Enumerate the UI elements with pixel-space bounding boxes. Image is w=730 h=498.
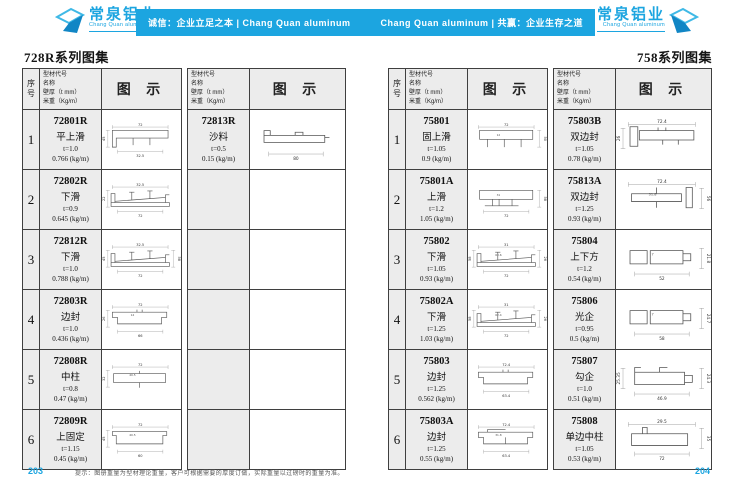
row-index: 2 — [389, 170, 406, 230]
profile-diagram-empty — [250, 410, 346, 470]
profile-weight: 0.51 (kg/m) — [554, 395, 615, 403]
profile-weight: 0.93 (kg/m) — [554, 215, 615, 223]
brand-logo-right: 常泉铝业 Chang Quan aluminum — [597, 7, 699, 35]
col-header-diagram: 图 示 — [616, 69, 712, 110]
profile-diagram-cell: 80 — [250, 110, 346, 170]
row-index: 3 — [389, 230, 406, 290]
dim-label-left: 45 — [102, 436, 106, 441]
row-index: 6 — [23, 410, 40, 470]
profile-thickness: t=1.25 — [406, 385, 467, 393]
profile-name: 光企 — [554, 309, 615, 323]
profile-cross-section-diagram: 725831 — [468, 172, 547, 228]
profile-diagram-cell: 72.45631.8 — [616, 170, 712, 230]
dim-label-right: 50 — [543, 136, 547, 141]
profile-diagram-cell: 72662614 — [102, 290, 182, 350]
dim-label-bottom: 66 — [138, 334, 143, 338]
row-index: 4 — [389, 290, 406, 350]
dim-label-bottom: 58 — [659, 336, 665, 342]
profile-name: 单边中柱 — [554, 429, 615, 443]
profile-info-empty — [188, 410, 250, 470]
row-index: 4 — [23, 290, 40, 350]
profile-weight: 0.645 (kg/m) — [40, 215, 101, 223]
table-header-row: 型材代号名称壁厚（t mm）米重（Kg/m）图 示 — [554, 69, 712, 110]
profile-row: 75804上下方t=1.20.54 (kg/m)5221.87 — [554, 230, 712, 290]
profile-code: 75813A — [554, 176, 615, 187]
profile-thickness: t=0.95 — [554, 325, 615, 333]
profile-weight: 0.78 (kg/m) — [554, 155, 615, 163]
dim-label-bottom: 72 — [504, 214, 509, 218]
profile-info: 75802下滑t=1.050.93 (kg/m) — [406, 230, 468, 290]
banner-slogan-right: Chang Quan aluminum | 共赢：企业生存之道 — [380, 16, 583, 29]
profile-row: 75813A双边封t=1.250.93 (kg/m)72.45631.8 — [554, 170, 712, 230]
dim-label-left: 22 — [102, 196, 106, 201]
profile-cross-section-diagram: 80 — [250, 112, 345, 168]
dim-label-top: 72 — [138, 123, 143, 127]
profile-thickness: t=1.2 — [554, 265, 615, 273]
series-title-758: 758系列图集 — [637, 47, 712, 66]
profile-code: 72808R — [40, 356, 101, 367]
profile-info: 72809R上固定t=1.150.45 (kg/m) — [40, 410, 102, 470]
dim-label-bottom: 72 — [138, 214, 143, 218]
table-758-left: 序号型材代号名称壁厚（t mm）米重（Kg/m）图 示175801固上滑t=1.… — [388, 68, 548, 470]
dim-label-bottom: 72 — [504, 334, 509, 338]
profile-info-empty — [188, 290, 250, 350]
profile-diagram-empty — [250, 170, 346, 230]
dim-label-bottom: 52 — [659, 276, 665, 282]
profile-name: 边封 — [406, 429, 467, 443]
row-index: 5 — [23, 350, 40, 410]
profile-code: 75806 — [554, 296, 615, 307]
profile-row: 172801R平上滑t=1.00.766 (kg/m)7232.545 — [23, 110, 182, 170]
profile-code: 72801R — [40, 116, 101, 127]
dim-label-top: 72 — [138, 423, 143, 427]
dim-label-right: 58 — [543, 196, 547, 201]
profile-weight: 1.05 (kg/m) — [406, 215, 467, 223]
profile-row: 75808单边中柱t=1.050.53 (kg/m)29.57235 — [554, 410, 712, 470]
profile-thickness: t=1.2 — [406, 205, 467, 213]
dim-label-right: 21.8 — [705, 254, 711, 264]
profile-thickness: t=1.05 — [554, 445, 615, 453]
profile-cross-section-diagram: 32.5725845 — [102, 232, 181, 288]
profile-cross-section-diagram: 5221.87 — [616, 232, 711, 288]
profile-weight: 0.562 (kg/m) — [406, 395, 467, 403]
profile-diagram-cell: 725831 — [468, 170, 548, 230]
dim-label-inner: 62.4 — [495, 313, 502, 317]
dim-label-inner: 31.8 — [649, 192, 657, 196]
table-header-row: 型材代号名称壁厚（t mm）米重（Kg/m）图 示 — [188, 69, 346, 110]
profile-info-empty — [188, 170, 250, 230]
row-index: 6 — [389, 410, 406, 470]
catalog-page: 常泉铝业 Chang Quan aluminum 诚信：企业立足之本 | Cha… — [0, 0, 730, 498]
profile-thickness: t=1.25 — [554, 205, 615, 213]
profile-info: 75802A下滑t=1.251.03 (kg/m) — [406, 290, 468, 350]
profile-thickness: t=1.05 — [406, 265, 467, 273]
profile-info: 72808R中柱t=0.80.47 (kg/m) — [40, 350, 102, 410]
profile-info: 72802R下滑t=0.90.645 (kg/m) — [40, 170, 102, 230]
profile-weight: 0.54 (kg/m) — [554, 275, 615, 283]
profile-name: 下滑 — [406, 309, 467, 323]
profile-info: 75806光企t=0.950.5 (kg/m) — [554, 290, 616, 350]
profile-code: 75801A — [406, 176, 467, 187]
col-header-profile-info: 型材代号名称壁厚（t mm）米重（Kg/m） — [554, 69, 616, 110]
page-number-left: 203 — [28, 466, 43, 476]
dim-label-left: 32 — [102, 376, 106, 381]
profile-cross-section-diagram: 3172265862.4 — [468, 292, 547, 348]
profile-row: 375802下滑t=1.050.93 (kg/m)3172265863.6 — [389, 230, 548, 290]
dim-label-bottom: 63.4 — [502, 454, 511, 458]
profile-name: 中柱 — [40, 369, 101, 383]
dim-label-inner: 40.5 — [129, 433, 136, 437]
dim-label-top: 31 — [504, 243, 509, 247]
profile-cross-section-diagram: 46.924.325.35 — [616, 352, 711, 408]
profile-cross-section-diagram: 29.57235 — [616, 412, 711, 468]
profile-diagram-cell: 723240.5 — [102, 350, 182, 410]
profile-weight: 0.436 (kg/m) — [40, 335, 101, 343]
dim-label-bottom: 60 — [138, 454, 143, 458]
profile-row: 372812R下滑t=1.00.788 (kg/m)32.5725845 — [23, 230, 182, 290]
profile-row: 575803边封t=1.250.562 (kg/m)72.463.4 — [389, 350, 548, 410]
profile-code: 75807 — [554, 356, 615, 367]
profile-info: 72803R边封t=1.00.436 (kg/m) — [40, 290, 102, 350]
brand-diamond-icon — [669, 7, 699, 35]
dim-label-bottom: 32.5 — [136, 154, 144, 158]
profile-cross-section-diagram: 72662614 — [102, 292, 181, 348]
profile-row — [188, 230, 346, 290]
profile-weight: 0.766 (kg/m) — [40, 155, 101, 163]
profile-row — [188, 170, 346, 230]
profile-cross-section-diagram: 5824.77 — [616, 292, 711, 348]
dim-label-top: 72.4 — [502, 363, 511, 367]
profile-diagram-cell: 32.57222 — [102, 170, 182, 230]
brand-name-en: Chang Quan aluminum — [603, 23, 665, 29]
dim-label-right: 58 — [177, 256, 181, 261]
row-index: 1 — [389, 110, 406, 170]
dim-label-left: 26 — [616, 135, 622, 141]
profile-diagram-cell: 3172265863.6 — [468, 230, 548, 290]
row-index: 1 — [23, 110, 40, 170]
profile-row — [188, 290, 346, 350]
dim-label-right: 24.3 — [705, 374, 711, 384]
profile-code: 75803A — [406, 416, 467, 427]
profile-code: 75804 — [554, 236, 615, 247]
profile-name: 边封 — [40, 309, 101, 323]
table-758-right: 型材代号名称壁厚（t mm）米重（Kg/m）图 示75803B双边封t=1.05… — [553, 68, 712, 470]
profile-row: 672809R上固定t=1.150.45 (kg/m)72604540.5 — [23, 410, 182, 470]
dim-label-left: 26 — [102, 316, 106, 321]
profile-info: 75801A上滑t=1.21.05 (kg/m) — [406, 170, 468, 230]
profiles-table: 序号型材代号名称壁厚（t mm）米重（Kg/m）图 示172801R平上滑t=1… — [22, 68, 182, 470]
profile-weight: 0.788 (kg/m) — [40, 275, 101, 283]
profile-cross-section-diagram: 3172265863.6 — [468, 232, 547, 288]
dim-label-top: 72.4 — [657, 119, 667, 125]
table-728r-left: 序号型材代号名称壁厚（t mm）米重（Kg/m）图 示172801R平上滑t=1… — [22, 68, 182, 470]
profile-cross-section-diagram: 72.426 — [616, 112, 711, 168]
profile-thickness: t=0.9 — [40, 205, 101, 213]
dim-label-left: 45 — [102, 256, 106, 261]
profile-cross-section-diagram: 72.463.431.8 — [468, 412, 547, 468]
banner-slogan-left: 诚信：企业立足之本 | Chang Quan aluminum — [148, 16, 351, 29]
profile-row: 475802A下滑t=1.251.03 (kg/m)3172265862.4 — [389, 290, 548, 350]
col-header-profile-info: 型材代号名称壁厚（t mm）米重（Kg/m） — [406, 69, 468, 110]
profile-thickness: t=1.0 — [40, 145, 101, 153]
dim-label-top: 72 — [138, 303, 143, 307]
dim-label-top: 72 — [504, 123, 509, 127]
profile-info: 75803A边封t=1.250.55 (kg/m) — [406, 410, 468, 470]
profile-code: 75803B — [554, 116, 615, 127]
profile-thickness: t=0.8 — [40, 385, 101, 393]
profile-weight: 0.93 (kg/m) — [406, 275, 467, 283]
profile-thickness: t=0.5 — [188, 145, 249, 153]
profile-code: 72809R — [40, 416, 101, 427]
profile-thickness: t=1.0 — [40, 325, 101, 333]
profile-diagram-cell: 725012 — [468, 110, 548, 170]
profile-row: 675803A边封t=1.250.55 (kg/m)72.463.431.8 — [389, 410, 548, 470]
profile-weight: 0.47 (kg/m) — [40, 395, 101, 403]
profile-row: 272802R下滑t=0.90.645 (kg/m)32.57222 — [23, 170, 182, 230]
profile-row: 275801A上滑t=1.21.05 (kg/m)725831 — [389, 170, 548, 230]
profile-thickness: t=1.05 — [406, 145, 467, 153]
dim-label-bottom: 72 — [504, 274, 509, 278]
dim-label-top: 72.4 — [657, 179, 667, 185]
profile-cross-section-diagram: 32.57222 — [102, 172, 181, 228]
col-header-diagram: 图 示 — [102, 69, 182, 110]
profiles-table: 型材代号名称壁厚（t mm）米重（Kg/m）图 示75803B双边封t=1.05… — [553, 68, 712, 470]
profile-info: 75807勾企t=1.00.51 (kg/m) — [554, 350, 616, 410]
table-728r-right: 型材代号名称壁厚（t mm）米重（Kg/m）图 示72813R沙料t=0.50.… — [187, 68, 346, 470]
profile-diagram-cell: 72604540.5 — [102, 410, 182, 470]
row-index: 3 — [23, 230, 40, 290]
profile-cross-section-diagram: 725012 — [468, 112, 547, 168]
profile-name: 下滑 — [40, 249, 101, 263]
profile-info: 75801固上滑t=1.050.9 (kg/m) — [406, 110, 468, 170]
profile-name: 双边封 — [554, 129, 615, 143]
profile-row: 175801固上滑t=1.050.9 (kg/m)725012 — [389, 110, 548, 170]
dim-label-top: 32.5 — [136, 243, 144, 247]
profiles-table: 型材代号名称壁厚（t mm）米重（Kg/m）图 示72813R沙料t=0.50.… — [187, 68, 346, 470]
dim-label-inner: 7 — [651, 312, 653, 316]
dim-label-top: 72.4 — [502, 423, 511, 427]
row-index: 2 — [23, 170, 40, 230]
dim-label-top: 72 — [138, 363, 143, 367]
profile-name: 勾企 — [554, 369, 615, 383]
profile-weight: 0.15 (kg/m) — [188, 155, 249, 163]
profile-thickness: t=1.05 — [554, 145, 615, 153]
profile-thickness: t=1.25 — [406, 445, 467, 453]
profile-name: 沙料 — [188, 129, 249, 143]
dim-label-top: 32.5 — [136, 183, 144, 187]
profile-code: 72813R — [188, 116, 249, 127]
profile-weight: 0.53 (kg/m) — [554, 455, 615, 463]
dim-label-bottom: 46.9 — [657, 396, 667, 402]
profile-row: 472803R边封t=1.00.436 (kg/m)72662614 — [23, 290, 182, 350]
dim-label-bottom: 72 — [659, 456, 665, 462]
dim-label-right: 24.7 — [705, 314, 711, 324]
page-number-right: 204 — [695, 466, 710, 476]
dim-label-right: 35 — [705, 436, 711, 442]
profile-name: 上固定 — [40, 429, 101, 443]
dim-label-right: 26 — [543, 316, 547, 321]
col-header-index: 序号 — [389, 69, 406, 110]
col-header-diagram: 图 示 — [468, 69, 548, 110]
profile-name: 平上滑 — [40, 129, 101, 143]
dim-label-inner: 40.5 — [129, 373, 136, 377]
profile-info: 75804上下方t=1.20.54 (kg/m) — [554, 230, 616, 290]
profile-diagram-empty — [250, 290, 346, 350]
profile-diagram-cell: 5221.87 — [616, 230, 712, 290]
series-title-728r: 728R系列图集 — [24, 47, 109, 66]
profile-thickness: t=1.0 — [40, 265, 101, 273]
col-header-profile-info: 型材代号名称壁厚（t mm）米重（Kg/m） — [40, 69, 102, 110]
profile-cross-section-diagram: 7232.545 — [102, 112, 181, 168]
dim-label-top: 29.5 — [657, 419, 667, 425]
profile-cross-section-diagram: 723240.5 — [102, 352, 181, 408]
profile-diagram-cell: 5824.77 — [616, 290, 712, 350]
profile-cross-section-diagram: 72.463.4 — [468, 352, 547, 408]
dim-label-right: 56 — [705, 196, 711, 202]
profile-weight: 0.9 (kg/m) — [406, 155, 467, 163]
col-header-profile-info: 型材代号名称壁厚（t mm）米重（Kg/m） — [188, 69, 250, 110]
profile-row: 572808R中柱t=0.80.47 (kg/m)723240.5 — [23, 350, 182, 410]
dim-label-left: 25.35 — [616, 372, 622, 384]
header-banner: 诚信：企业立足之本 | Chang Quan aluminum Chang Qu… — [136, 9, 595, 36]
profile-name: 固上滑 — [406, 129, 467, 143]
dim-label-inner: 31 — [497, 193, 501, 197]
dim-label-left: 45 — [102, 136, 106, 141]
profile-thickness: t=1.0 — [554, 385, 615, 393]
footer-note: 提示：图册重量为型材理论重量，客户可根据需要的厚度订做，实际重量以过磅时的重量为… — [75, 468, 344, 477]
profile-info: 72801R平上滑t=1.00.766 (kg/m) — [40, 110, 102, 170]
profile-code: 75802A — [406, 296, 467, 307]
profile-diagram-cell: 32.5725845 — [102, 230, 182, 290]
profile-diagram-cell: 72.463.4 — [468, 350, 548, 410]
profile-name: 下滑 — [406, 249, 467, 263]
profile-thickness: t=1.15 — [40, 445, 101, 453]
dim-label-inner: 7 — [651, 252, 653, 256]
profile-row — [188, 410, 346, 470]
profile-row: 75803B双边封t=1.050.78 (kg/m)72.426 — [554, 110, 712, 170]
dim-label-bottom: 63.4 — [502, 394, 511, 398]
dim-label-bottom: 80 — [293, 156, 299, 162]
dim-label-inner: 12 — [497, 133, 501, 137]
profile-info: 75808单边中柱t=1.050.53 (kg/m) — [554, 410, 616, 470]
profile-info-empty — [188, 350, 250, 410]
profile-code: 72812R — [40, 236, 101, 247]
profile-name: 下滑 — [40, 189, 101, 203]
profile-row: 75807勾企t=1.00.51 (kg/m)46.924.325.35 — [554, 350, 712, 410]
profile-weight: 0.5 (kg/m) — [554, 335, 615, 343]
profile-info: 75813A双边封t=1.250.93 (kg/m) — [554, 170, 616, 230]
profile-diagram-empty — [250, 350, 346, 410]
profile-info: 75803B双边封t=1.050.78 (kg/m) — [554, 110, 616, 170]
dim-label-inner: 63.6 — [495, 253, 502, 257]
brand-name-cn: 常泉铝业 — [597, 7, 665, 23]
dim-label-inner: 14 — [131, 313, 135, 317]
col-header-diagram: 图 示 — [250, 69, 346, 110]
profile-row — [188, 350, 346, 410]
profile-diagram-cell: 46.924.325.35 — [616, 350, 712, 410]
brand-diamond-icon — [55, 7, 85, 35]
profile-code: 75808 — [554, 416, 615, 427]
col-header-index: 序号 — [23, 69, 40, 110]
profile-info: 72813R沙料t=0.50.15 (kg/m) — [188, 110, 250, 170]
profile-name: 边封 — [406, 369, 467, 383]
profile-diagram-cell: 3172265862.4 — [468, 290, 548, 350]
profile-code: 72802R — [40, 176, 101, 187]
profile-name: 双边封 — [554, 189, 615, 203]
profile-diagram-cell: 29.57235 — [616, 410, 712, 470]
dim-label-top: 31 — [504, 303, 509, 307]
profile-info: 72812R下滑t=1.00.788 (kg/m) — [40, 230, 102, 290]
profile-diagram-cell: 72.463.431.8 — [468, 410, 548, 470]
profile-code: 75801 — [406, 116, 467, 127]
profile-code: 75802 — [406, 236, 467, 247]
profile-weight: 1.03 (kg/m) — [406, 335, 467, 343]
profile-name: 上滑 — [406, 189, 467, 203]
profile-code: 75803 — [406, 356, 467, 367]
profile-thickness: t=1.25 — [406, 325, 467, 333]
profile-code: 72803R — [40, 296, 101, 307]
dim-label-left: 58 — [468, 316, 472, 321]
profile-row: 75806光企t=0.950.5 (kg/m)5824.77 — [554, 290, 712, 350]
table-header-row: 序号型材代号名称壁厚（t mm）米重（Kg/m）图 示 — [389, 69, 548, 110]
profile-row: 72813R沙料t=0.50.15 (kg/m)80 — [188, 110, 346, 170]
profile-info: 75803边封t=1.250.562 (kg/m) — [406, 350, 468, 410]
profile-diagram-cell: 7232.545 — [102, 110, 182, 170]
profile-diagram-empty — [250, 230, 346, 290]
profile-weight: 0.55 (kg/m) — [406, 455, 467, 463]
profile-info-empty — [188, 230, 250, 290]
row-index: 5 — [389, 350, 406, 410]
profile-cross-section-diagram: 72.45631.8 — [616, 172, 711, 228]
dim-label-left: 58 — [468, 256, 472, 261]
dim-label-right: 26 — [543, 256, 547, 261]
profile-name: 上下方 — [554, 249, 615, 263]
dim-label-inner: 31.8 — [495, 433, 502, 437]
profile-cross-section-diagram: 72604540.5 — [102, 412, 181, 468]
table-header-row: 序号型材代号名称壁厚（t mm）米重（Kg/m）图 示 — [23, 69, 182, 110]
profile-diagram-cell: 72.426 — [616, 110, 712, 170]
profiles-table: 序号型材代号名称壁厚（t mm）米重（Kg/m）图 示175801固上滑t=1.… — [388, 68, 548, 470]
dim-label-bottom: 72 — [138, 274, 143, 278]
profile-weight: 0.45 (kg/m) — [40, 455, 101, 463]
